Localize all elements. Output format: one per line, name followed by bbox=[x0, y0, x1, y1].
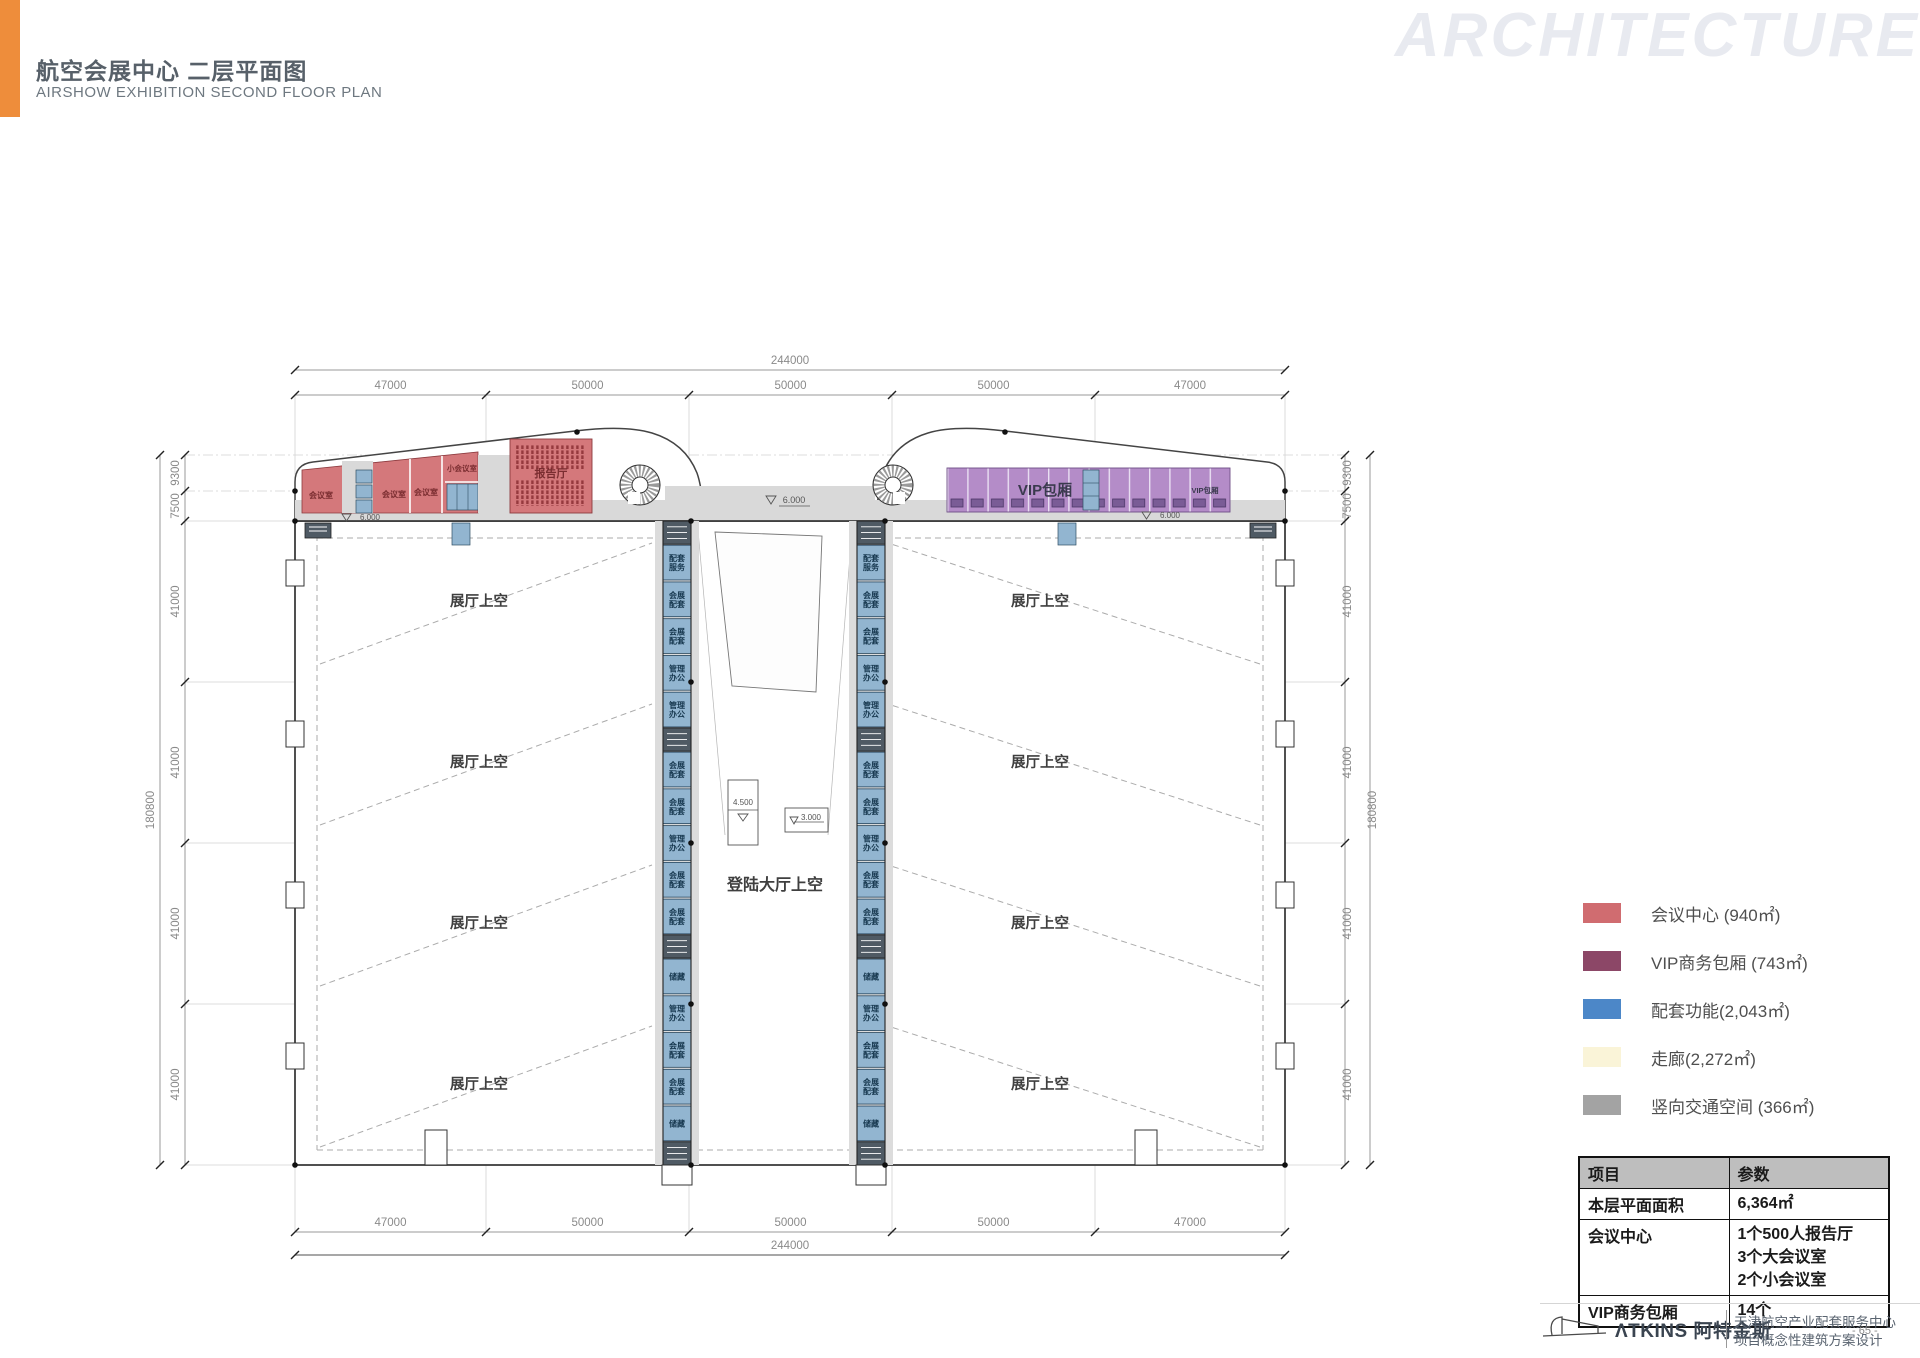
core-room-label: 会展 bbox=[669, 627, 685, 637]
core-room-label: 管理 bbox=[863, 834, 879, 844]
core-room-label: 配套 bbox=[669, 1049, 686, 1059]
core-room-label: 配套 bbox=[863, 553, 880, 563]
core-room-label: 配套 bbox=[669, 599, 686, 609]
core-room-label: 配套 bbox=[863, 1086, 880, 1096]
legend-item: 配套功能(2,043㎡) bbox=[1583, 999, 1903, 1019]
table-header-cell: 参数 bbox=[1729, 1157, 1889, 1189]
table-value-cell: 1个500人报告厅3个大会议室2个小会议室 bbox=[1729, 1220, 1889, 1296]
page-number: - 65 - bbox=[1852, 1325, 1878, 1337]
core-room-label: 储藏 bbox=[668, 971, 685, 981]
core-room-label: 办公 bbox=[863, 709, 879, 719]
core-room-label: 会展 bbox=[669, 1077, 685, 1087]
core-room-label: 会展 bbox=[669, 907, 685, 917]
spiral-ramp-right bbox=[873, 465, 913, 505]
core-room-label: 会展 bbox=[863, 627, 879, 637]
page-title-en: AIRSHOW EXHIBITION SECOND FLOOR PLAN bbox=[36, 84, 382, 101]
core-room-label: 会展 bbox=[863, 1077, 879, 1087]
dimension-label: 9300 bbox=[1342, 460, 1354, 486]
core-room-label: 配套 bbox=[669, 916, 686, 926]
auditorium-label: 报告厅 bbox=[535, 466, 568, 480]
dimension-label: 50000 bbox=[978, 1217, 1010, 1229]
core-room-label: 办公 bbox=[669, 672, 685, 682]
exhibition-hall-label: 展厅上空 bbox=[1011, 914, 1069, 932]
page-title-zh: 航空会展中心 二层平面图 bbox=[36, 52, 307, 86]
small-meeting-room-label: 小会议室 bbox=[447, 463, 477, 473]
dimension-label: 41000 bbox=[1342, 586, 1354, 618]
core-room-label: 会展 bbox=[863, 797, 879, 807]
core-room-label: 办公 bbox=[669, 843, 685, 853]
core-room-label: 管理 bbox=[669, 834, 685, 844]
core-room-label: 办公 bbox=[669, 1013, 685, 1023]
core-room-label: 配套 bbox=[669, 1086, 686, 1096]
dimension-label: 50000 bbox=[978, 380, 1010, 392]
core-room-label: 会展 bbox=[863, 590, 879, 600]
core-room-label: 配套 bbox=[669, 879, 686, 889]
dimension-label: 47000 bbox=[375, 1217, 407, 1229]
core-room-label: 会展 bbox=[863, 760, 879, 770]
dimension-label: 50000 bbox=[775, 1217, 807, 1229]
table-header-row: 项目参数 bbox=[1579, 1157, 1889, 1189]
legend-item-label: 竖向交通空间 (366㎡) bbox=[1651, 1093, 1814, 1118]
legend-item: 走廊(2,272㎡) bbox=[1583, 1047, 1903, 1067]
dimension-label: 180800 bbox=[1367, 791, 1379, 829]
exhibition-hall-label: 展厅上空 bbox=[1011, 1075, 1069, 1093]
exhibition-hall-label: 展厅上空 bbox=[450, 753, 508, 771]
meeting-room-label: 会议室 bbox=[414, 487, 438, 497]
core-room-label: 管理 bbox=[669, 700, 685, 710]
table-header-cell: 项目 bbox=[1579, 1157, 1729, 1189]
dimension-label: 244000 bbox=[771, 1240, 809, 1252]
dimension-label: 41000 bbox=[170, 747, 182, 779]
core-room-label: 会展 bbox=[669, 760, 685, 770]
core-room-label: 办公 bbox=[863, 1013, 879, 1023]
table-row: 会议中心1个500人报告厅3个大会议室2个小会议室 bbox=[1579, 1220, 1889, 1296]
exhibition-hall-label: 展厅上空 bbox=[1011, 592, 1069, 610]
table-item-cell: 本层平面面积 bbox=[1579, 1189, 1729, 1220]
accent-bar bbox=[0, 0, 20, 117]
spiral-ramp-left bbox=[620, 465, 660, 505]
table-item-cell: 会议中心 bbox=[1579, 1220, 1729, 1296]
dimension-label: 50000 bbox=[572, 380, 604, 392]
core-room-label: 会展 bbox=[863, 870, 879, 880]
meeting-room-label: 会议室 bbox=[382, 489, 406, 499]
legend-swatch bbox=[1583, 903, 1621, 923]
dimension-label: 50000 bbox=[572, 1217, 604, 1229]
legend-item: 会议中心 (940㎡) bbox=[1583, 903, 1903, 923]
dimension-label: 47000 bbox=[375, 380, 407, 392]
atkins-logo-icon bbox=[1540, 1308, 1612, 1344]
core-room-label: 服务 bbox=[669, 562, 686, 572]
dimension-label: 9300 bbox=[170, 460, 182, 486]
legend-item: 竖向交通空间 (366㎡) bbox=[1583, 1095, 1903, 1115]
legend-swatch bbox=[1583, 1095, 1621, 1115]
vip-box-label-large: VIP包厢 bbox=[1018, 481, 1072, 499]
core-room-label: 会展 bbox=[669, 590, 685, 600]
core-room-label: 配套 bbox=[863, 636, 880, 646]
legend: 会议中心 (940㎡)VIP商务包厢 (743㎡)配套功能(2,043㎡)走廊(… bbox=[1583, 903, 1903, 1143]
core-room-label: 会展 bbox=[863, 907, 879, 917]
core-room-label: 会展 bbox=[669, 1040, 685, 1050]
core-room-label: 储藏 bbox=[862, 971, 879, 981]
dimension-label: 41000 bbox=[170, 1069, 182, 1101]
core-room-label: 配套 bbox=[669, 636, 686, 646]
level-6000-right: 6.000 bbox=[1160, 511, 1181, 520]
level-4500: 4.500 bbox=[733, 798, 754, 807]
legend-item-label: 走廊(2,272㎡) bbox=[1651, 1045, 1756, 1070]
core-room-label: 管理 bbox=[863, 700, 879, 710]
core-room-label: 配套 bbox=[863, 879, 880, 889]
exhibition-hall-label: 展厅上空 bbox=[450, 592, 508, 610]
dimension-label: 41000 bbox=[1342, 1069, 1354, 1101]
core-room-label: 管理 bbox=[863, 1004, 879, 1014]
legend-item-label: 配套功能(2,043㎡) bbox=[1651, 997, 1790, 1022]
core-room-label: 配套 bbox=[863, 806, 880, 816]
level-3000: 3.000 bbox=[801, 813, 822, 822]
dimension-label: 41000 bbox=[170, 586, 182, 618]
core-room-label: 配套 bbox=[669, 806, 686, 816]
table-value-cell: 6,364㎡ bbox=[1729, 1189, 1889, 1220]
legend-item-label: VIP商务包厢 (743㎡) bbox=[1651, 949, 1808, 974]
landing-hall-label: 登陆大厅上空 bbox=[726, 875, 823, 894]
footer-vertical-divider bbox=[1726, 1310, 1727, 1348]
dimension-label: 41000 bbox=[1342, 908, 1354, 940]
legend-item: VIP商务包厢 (743㎡) bbox=[1583, 951, 1903, 971]
architecture-watermark: ARCHITECTURE bbox=[1395, 0, 1920, 71]
core-room-label: 办公 bbox=[863, 672, 879, 682]
core-room-label: 会展 bbox=[863, 1040, 879, 1050]
dimension-label: 47000 bbox=[1174, 380, 1206, 392]
meeting-room-label: 会议室 bbox=[309, 490, 333, 500]
vip-zone: VIP包厢 VIP包厢 bbox=[947, 468, 1230, 512]
core-room-label: 储藏 bbox=[862, 1118, 879, 1128]
exhibition-hall-label: 展厅上空 bbox=[450, 914, 508, 932]
core-room-label: 配套 bbox=[863, 1049, 880, 1059]
core-room-label: 配套 bbox=[863, 599, 880, 609]
legend-swatch bbox=[1583, 1047, 1621, 1067]
core-room-label: 会展 bbox=[669, 870, 685, 880]
core-room-label: 办公 bbox=[669, 709, 685, 719]
dimension-label: 47000 bbox=[1174, 1217, 1206, 1229]
dimension-label: 7500 bbox=[170, 493, 182, 519]
core-room-label: 办公 bbox=[863, 843, 879, 853]
dimension-label: 244000 bbox=[771, 355, 809, 367]
legend-swatch bbox=[1583, 951, 1621, 971]
core-room-label: 管理 bbox=[669, 1004, 685, 1014]
table-row: 本层平面面积6,364㎡ bbox=[1579, 1189, 1889, 1220]
vip-box-label-small: VIP包厢 bbox=[1191, 485, 1219, 495]
core-room-label: 管理 bbox=[669, 663, 685, 673]
core-room-label: 储藏 bbox=[668, 1118, 685, 1128]
dimension-label: 41000 bbox=[1342, 747, 1354, 779]
dimension-label: 7500 bbox=[1342, 493, 1354, 519]
core-room-label: 管理 bbox=[863, 663, 879, 673]
dimension-label: 50000 bbox=[775, 380, 807, 392]
dimension-label: 180800 bbox=[145, 791, 157, 829]
floor-plan-drawing: 会议室 会议室 会议室 小会议室 报告厅 VIP包厢 VIP包厢 bbox=[80, 330, 1420, 1320]
exhibition-hall-label: 展厅上空 bbox=[1011, 753, 1069, 771]
level-6000-center: 6.000 bbox=[783, 495, 806, 505]
core-room-label: 配套 bbox=[669, 769, 686, 779]
core-room-label: 服务 bbox=[863, 562, 880, 572]
footer-divider-line bbox=[1540, 1303, 1920, 1304]
dimension-label: 41000 bbox=[170, 908, 182, 940]
legend-swatch bbox=[1583, 999, 1621, 1019]
exhibition-hall-label: 展厅上空 bbox=[450, 1075, 508, 1093]
level-6000-left: 6.000 bbox=[360, 513, 381, 522]
core-room-label: 会展 bbox=[669, 797, 685, 807]
core-room-label: 配套 bbox=[669, 553, 686, 563]
legend-item-label: 会议中心 (940㎡) bbox=[1651, 901, 1780, 926]
core-room-label: 配套 bbox=[863, 916, 880, 926]
core-room-label: 配套 bbox=[863, 769, 880, 779]
